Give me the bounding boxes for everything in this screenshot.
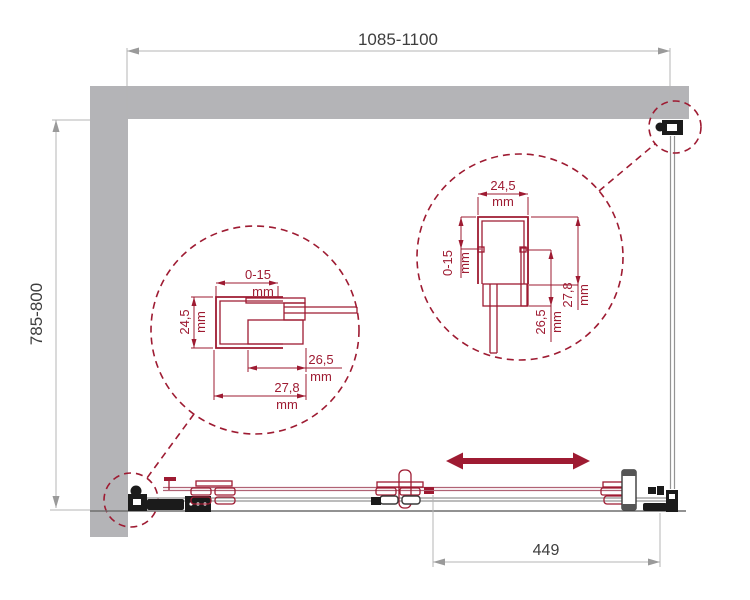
profile-inner (220, 301, 283, 344)
profile-outer (216, 297, 283, 348)
detail-right-dim-top-unit: mm (492, 194, 514, 209)
glass-pocket (284, 303, 305, 320)
dim-arrow (297, 366, 306, 371)
shower-enclosure-plan-drawing: 1085-1100 785-800 (0, 0, 750, 600)
clip-mark (424, 491, 434, 494)
dim-arrow (549, 297, 554, 306)
detail-left-dim-inner-value: 26,5 (308, 352, 333, 367)
roller-wheel-dark (402, 496, 420, 504)
cylinder-hatch-bottom (622, 504, 636, 510)
profile-channel (248, 320, 303, 344)
magnet-strip (657, 486, 664, 495)
fixed-glass-panel (671, 136, 675, 489)
detail-right-dim-outer-unit: mm (576, 284, 591, 306)
depth-arrow-bottom (53, 496, 60, 508)
dim-arrow (478, 192, 487, 197)
detail-right-dim-outer: 27,8 mm (529, 217, 591, 310)
corner-bracket-notch (669, 494, 675, 499)
detail-left-dim-top: 0-15 mm (216, 267, 278, 299)
dim-arrow (576, 217, 581, 226)
detail-left: 0-15 mm 24,5 mm 26,5 mm (151, 226, 359, 434)
top-right-wall-bracket (656, 120, 684, 135)
detail-right-dim-inner-unit: mm (549, 311, 564, 333)
depth-dimension: 785-800 (27, 120, 90, 510)
width-arrow-right (658, 48, 670, 55)
wall-left (90, 119, 128, 537)
roller-carriage-middle (371, 470, 434, 508)
dim-arrow (248, 366, 257, 371)
detail-right-dim-inner: 26,5 mm (526, 250, 564, 342)
detail-left-dim-outer-unit: mm (276, 397, 298, 412)
dim-arrow (192, 297, 197, 306)
magnet-strip (648, 487, 656, 494)
dim-arrow (192, 339, 197, 348)
cylinder-hatch-top (622, 470, 636, 476)
door-stopper-bar (147, 499, 184, 510)
dim-arrow (576, 276, 581, 285)
dim-arrow (519, 192, 528, 197)
roller-cap (377, 482, 423, 487)
anti-jump-block (371, 497, 381, 505)
travel-dimension-label: 449 (533, 542, 560, 559)
detail-right: 24,5 mm 0-15 mm 26,5 mm (417, 154, 623, 360)
clip-mark (424, 487, 434, 490)
dim-arrow (459, 217, 464, 226)
corner-bracket (666, 490, 678, 512)
detail-left-dim-side: 24,5 mm (177, 297, 213, 348)
detail-right-dim-outer-value: 27,8 (560, 282, 575, 307)
roller-wheel-dark (380, 496, 398, 504)
roller-wheel (191, 488, 211, 495)
detail-right-dim-side-unit: mm (457, 252, 472, 274)
detail-left-dim-inner: 26,5 mm (248, 348, 342, 384)
bottom-stopper (643, 503, 667, 511)
detail-right-dim-side-value: 0-15 (440, 250, 455, 276)
door-track-assembly (90, 470, 686, 512)
bracket-knob (656, 123, 665, 132)
width-arrow-left (127, 48, 139, 55)
profile-inner (482, 221, 524, 284)
roller-wheel (400, 488, 420, 495)
roller-wheel (215, 488, 235, 495)
dim-arrow (216, 281, 225, 286)
detail-left-profile (216, 297, 357, 348)
travel-arrow-left (433, 559, 445, 566)
slide-direction-arrow (446, 453, 590, 470)
dim-arrow (549, 250, 554, 259)
detail-left-dim-top-unit: mm (252, 284, 274, 299)
detail-left-dim-outer-value: 27,8 (274, 380, 299, 395)
rail-clip (164, 477, 176, 481)
detail-right-dim-inner-value: 26,5 (533, 309, 548, 334)
left-bracket-notch (133, 499, 141, 505)
roller-cap (196, 481, 232, 486)
dim-arrow (214, 394, 223, 399)
detail-left-dim-inner-unit: mm (310, 369, 332, 384)
bracket-notch (667, 124, 677, 131)
detail-right-dim-top: 24,5 mm (478, 178, 528, 215)
detail-left-dim-side-unit: mm (193, 311, 208, 333)
leader-left (147, 414, 194, 478)
detail-left-dim-outer: 27,8 mm (214, 350, 306, 412)
roller-wheel (376, 488, 396, 495)
travel-arrow-right (648, 559, 660, 566)
width-dimension-label: 1085-1100 (358, 30, 438, 49)
detail-right-dim-top-value: 24,5 (490, 178, 515, 193)
leader-right (599, 144, 655, 191)
depth-arrow-top (53, 120, 60, 132)
detail-right-dim-side: 0-15 mm (440, 217, 481, 278)
depth-dimension-label: 785-800 (27, 283, 46, 345)
technical-drawing-canvas: 1085-1100 785-800 (0, 0, 750, 600)
detail-left-dim-side-value: 24,5 (177, 309, 192, 334)
dim-arrow (459, 240, 464, 249)
detail-left-dim-top-value: 0-15 (245, 267, 271, 282)
wall-top (90, 86, 689, 119)
detail-right-profile (478, 217, 528, 353)
